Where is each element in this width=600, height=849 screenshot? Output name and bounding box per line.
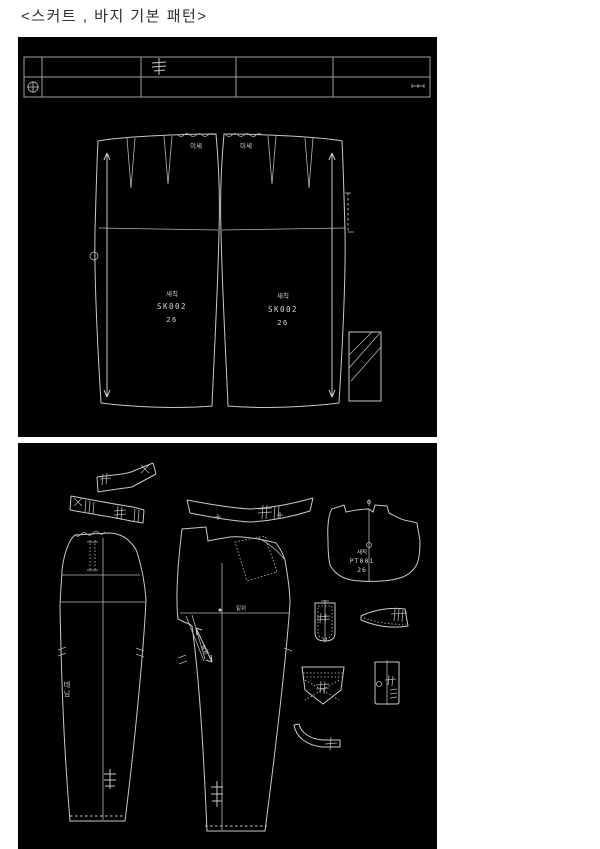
registration-mark-icon xyxy=(27,81,39,93)
svg-text:새칙: 새칙 xyxy=(277,291,289,300)
waistband-piece-a xyxy=(97,463,156,492)
pocket-facing-piece xyxy=(361,608,408,627)
seam-notches xyxy=(58,647,144,657)
yoke-piece: 새칙 PT001 26 xyxy=(328,499,420,582)
grainline-arrow xyxy=(329,153,335,397)
page-title: <스커트 , 바지 기본 패턴> xyxy=(21,5,208,26)
pants-pattern-panel: 새칙 PT001 26 xyxy=(18,443,437,849)
pants-front-piece: 밑위 늘림 xyxy=(177,527,292,831)
pocket-opening-dashed xyxy=(87,540,98,572)
yoke-label: 새칙 PT001 26 xyxy=(350,548,375,574)
crotch-label: 밑위 xyxy=(236,604,246,612)
title-block-table xyxy=(24,57,430,97)
waistband-rect-piece xyxy=(349,332,381,401)
scale-mark xyxy=(412,84,424,88)
pants-pattern-drawing: 새칙 PT001 26 xyxy=(18,443,437,849)
hip-line xyxy=(222,228,345,230)
svg-text:SK002: SK002 xyxy=(157,302,187,311)
button-mark xyxy=(90,252,98,260)
skirt-pattern-panel: 이세 새칙 SK002 26 xyxy=(18,37,437,437)
skirt-front-piece: 이세 새칙 SK002 26 xyxy=(90,134,219,408)
ease-label-right: 미세 xyxy=(240,141,252,150)
pants-back-piece xyxy=(58,532,146,822)
fly-placket-piece xyxy=(375,660,399,705)
svg-text:PT001: PT001 xyxy=(350,557,375,565)
back-fabric-label: 데님 xyxy=(62,681,72,699)
page: <스커트 , 바지 기본 패턴> xyxy=(0,0,600,849)
piece-label-right: 새칙 SK002 26 xyxy=(268,291,298,327)
hem-fold-mark xyxy=(104,769,116,789)
hem-fold-mark xyxy=(211,781,223,807)
slash-spread-lines: 늘림 xyxy=(186,615,212,662)
dart xyxy=(268,136,276,184)
dashed-guide-line xyxy=(345,193,354,232)
waistband-piece-b xyxy=(70,496,144,523)
curved-band-piece xyxy=(294,724,340,750)
svg-text:새칙: 새칙 xyxy=(166,289,178,298)
hip-line xyxy=(99,228,218,230)
svg-text:SK002: SK002 xyxy=(268,305,298,314)
svg-text:26: 26 xyxy=(357,566,367,574)
piece-label-left: 새칙 SK002 26 xyxy=(157,289,187,324)
svg-text:26: 26 xyxy=(166,316,177,324)
grainline-arrow xyxy=(104,153,110,397)
drill-dot xyxy=(219,609,222,612)
dart xyxy=(305,138,313,188)
svg-text:26: 26 xyxy=(277,319,288,327)
svg-text:새칙: 새칙 xyxy=(357,548,367,556)
grain-mark-icon xyxy=(152,58,166,75)
pocket-bag-dashed xyxy=(235,536,285,581)
skirt-pattern-drawing: 이세 새칙 SK002 26 xyxy=(18,37,437,437)
belt-loop-piece xyxy=(315,600,335,642)
back-pocket-piece xyxy=(302,667,344,704)
skirt-back-piece: 미세 새칙 SK002 26 xyxy=(221,134,346,408)
waistband-piece-long xyxy=(187,498,313,522)
ease-label-left: 이세 xyxy=(190,141,202,150)
dart xyxy=(164,136,172,184)
notch-mark xyxy=(368,499,371,506)
dart xyxy=(127,138,135,188)
